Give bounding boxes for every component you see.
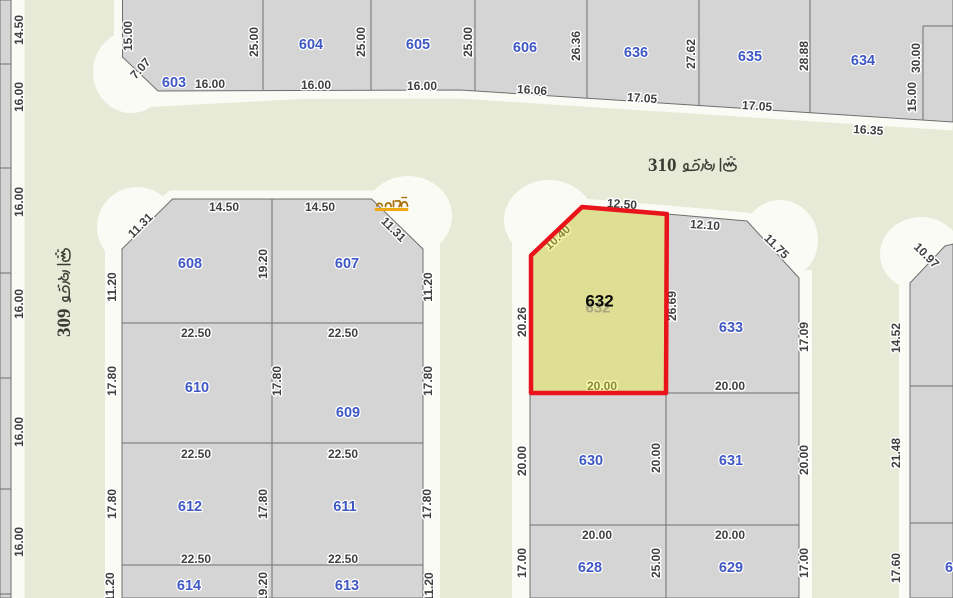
- svg-text:22.50: 22.50: [181, 552, 211, 566]
- svg-text:634: 634: [851, 53, 875, 69]
- svg-text:606: 606: [513, 40, 537, 56]
- svg-text:14.52: 14.52: [889, 323, 903, 353]
- svg-text:17.80: 17.80: [256, 489, 270, 519]
- svg-text:22.50: 22.50: [181, 326, 211, 340]
- svg-text:22.50: 22.50: [328, 552, 358, 566]
- svg-text:22.50: 22.50: [328, 447, 358, 461]
- svg-text:628: 628: [578, 560, 602, 576]
- svg-text:14.50: 14.50: [12, 15, 26, 45]
- svg-text:630: 630: [579, 453, 603, 469]
- svg-text:30.00: 30.00: [909, 43, 923, 73]
- svg-text:19.20: 19.20: [256, 572, 270, 598]
- svg-text:16.00: 16.00: [407, 79, 437, 93]
- svg-text:17.80: 17.80: [270, 366, 284, 396]
- svg-text:604: 604: [299, 37, 323, 53]
- svg-text:21.48: 21.48: [889, 438, 903, 468]
- svg-text:14.50: 14.50: [305, 200, 335, 214]
- svg-text:25.00: 25.00: [247, 27, 261, 57]
- svg-text:27.62: 27.62: [684, 39, 698, 69]
- svg-text:26.36: 26.36: [569, 31, 583, 61]
- svg-text:12.10: 12.10: [690, 217, 721, 233]
- svg-text:17.80: 17.80: [421, 366, 435, 396]
- svg-text:603: 603: [162, 75, 186, 91]
- svg-text:17.80: 17.80: [105, 366, 119, 396]
- svg-text:607: 607: [335, 256, 359, 272]
- svg-text:20.00: 20.00: [649, 443, 663, 473]
- svg-text:608: 608: [178, 256, 202, 272]
- svg-text:16.00: 16.00: [301, 78, 331, 92]
- svg-text:25.00: 25.00: [461, 27, 475, 57]
- svg-text:20.00: 20.00: [797, 445, 811, 475]
- svg-text:11.20: 11.20: [421, 272, 435, 302]
- svg-text:17.05: 17.05: [627, 90, 658, 106]
- svg-text:17.80: 17.80: [105, 489, 119, 519]
- svg-text:11.20: 11.20: [103, 572, 117, 598]
- svg-text:16.00: 16.00: [195, 77, 225, 91]
- svg-text:310: 310: [648, 155, 677, 176]
- svg-text:611: 611: [333, 499, 356, 515]
- svg-text:16.00: 16.00: [12, 187, 26, 217]
- svg-text:20.26: 20.26: [515, 307, 529, 337]
- svg-text:632: 632: [585, 292, 613, 311]
- svg-text:22.50: 22.50: [328, 326, 358, 340]
- svg-text:636: 636: [624, 45, 648, 61]
- svg-text:20.00: 20.00: [715, 528, 745, 542]
- svg-text:14.50: 14.50: [209, 200, 239, 214]
- svg-text:16.35: 16.35: [853, 122, 884, 138]
- svg-text:633: 633: [719, 320, 743, 336]
- svg-text:612: 612: [178, 499, 202, 515]
- svg-text:17.00: 17.00: [797, 548, 811, 578]
- svg-text:16.00: 16.00: [12, 417, 26, 447]
- svg-text:15.00: 15.00: [121, 21, 135, 51]
- svg-text:605: 605: [406, 37, 430, 53]
- svg-text:28.88: 28.88: [797, 41, 811, 71]
- svg-text:17.80: 17.80: [420, 489, 434, 519]
- svg-text:22.50: 22.50: [181, 447, 211, 461]
- svg-text:16.00: 16.00: [12, 527, 26, 557]
- svg-text:16.00: 16.00: [12, 289, 26, 319]
- svg-text:11.20: 11.20: [105, 272, 119, 302]
- svg-text:610: 610: [185, 380, 209, 396]
- svg-text:629: 629: [719, 560, 743, 576]
- svg-text:63: 63: [945, 560, 953, 576]
- svg-text:635: 635: [738, 49, 762, 65]
- svg-text:20.00: 20.00: [715, 379, 745, 393]
- svg-text:16.00: 16.00: [12, 82, 26, 112]
- svg-text:309: 309: [54, 309, 75, 338]
- svg-text:20.00: 20.00: [515, 446, 529, 476]
- svg-text:16.06: 16.06: [517, 82, 548, 98]
- svg-text:15.00: 15.00: [905, 82, 919, 112]
- svg-text:25.00: 25.00: [649, 548, 663, 578]
- svg-text:25.00: 25.00: [354, 27, 368, 57]
- svg-text:631: 631: [719, 453, 743, 469]
- svg-text:614: 614: [177, 578, 201, 594]
- svg-text:17.05: 17.05: [742, 98, 773, 114]
- svg-text:17.09: 17.09: [797, 322, 811, 352]
- svg-text:17.00: 17.00: [515, 548, 529, 578]
- svg-text:17.60: 17.60: [889, 553, 903, 583]
- svg-text:11.20: 11.20: [422, 572, 436, 598]
- svg-text:613: 613: [335, 578, 359, 594]
- svg-text:609: 609: [336, 405, 360, 421]
- svg-text:20.00: 20.00: [582, 528, 612, 542]
- svg-text:19.20: 19.20: [256, 249, 270, 279]
